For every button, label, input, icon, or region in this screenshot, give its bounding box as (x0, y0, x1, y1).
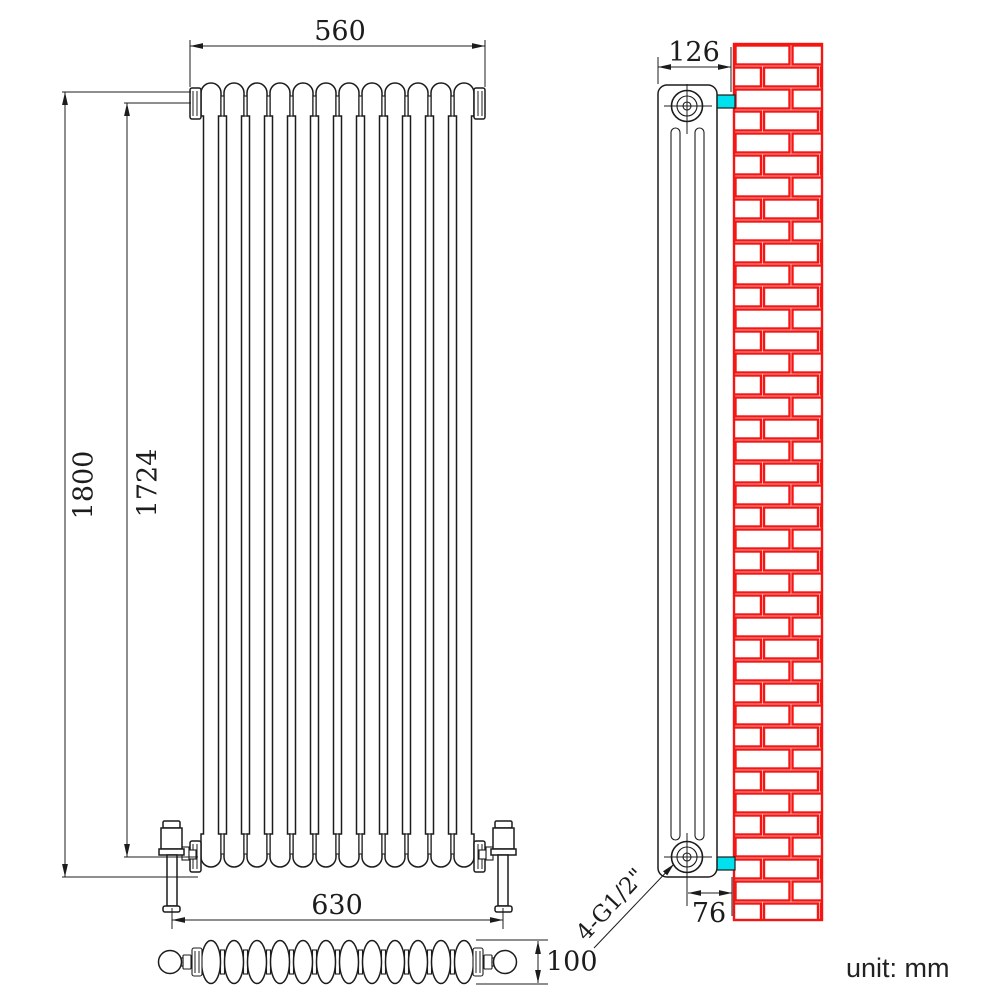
dim-630: 630 (172, 890, 503, 929)
dim-560-label: 560 (314, 16, 366, 47)
column-connector-bottom (405, 834, 408, 854)
radiator-technical-drawing: 560 1800 1724 630 (0, 0, 1001, 1001)
front-columns (201, 83, 474, 867)
column-connector-bottom (428, 834, 431, 854)
dim-126-label: 126 (668, 37, 720, 68)
radiator-column (201, 83, 221, 867)
radiator-column (385, 83, 405, 867)
plan-valve-right (473, 948, 517, 976)
column-connector-top (221, 96, 224, 116)
column-connector-top (451, 96, 454, 116)
column-connector-top (313, 96, 316, 116)
front-top-left-cap (190, 88, 201, 119)
plan-column-section (386, 941, 405, 984)
column-connector-top (382, 96, 385, 116)
radiator-column (454, 83, 474, 867)
plan-columns (202, 941, 474, 984)
plan-column-section (202, 941, 221, 984)
unit-label: unit: mm (846, 953, 950, 983)
front-view (159, 83, 516, 912)
dim-1800: 1800 (62, 92, 198, 877)
column-connector-top (359, 96, 362, 116)
wall-bracket-top (716, 95, 735, 108)
column-connector-top (428, 96, 431, 116)
plan-column-section (271, 941, 290, 984)
connection-callout: 4-G1/2" (571, 864, 674, 948)
radiator-column (316, 83, 336, 867)
plan-column-section (432, 941, 451, 984)
front-top-right-cap (474, 88, 485, 119)
plan-column-section (317, 941, 336, 984)
plan-column-section (340, 941, 359, 984)
radiator-column (431, 83, 451, 867)
radiator-column (293, 83, 313, 867)
radiator-column (270, 83, 290, 867)
dim-1724-label: 1724 (133, 449, 164, 518)
dim-630-label: 630 (311, 890, 363, 921)
dim-100-label: 100 (546, 947, 598, 978)
wall-bracket-bottom (716, 857, 735, 870)
connection-size-label: 4-G1/2" (571, 864, 650, 946)
column-connector-bottom (382, 834, 385, 854)
column-connector-top (405, 96, 408, 116)
dim-560: 560 (190, 16, 485, 87)
dim-76: 76 (688, 877, 732, 929)
column-connector-top (267, 96, 270, 116)
column-connector-bottom (221, 834, 224, 854)
dim-126: 126 (658, 37, 731, 92)
dim-76-label: 76 (692, 898, 726, 929)
column-connector-bottom (313, 834, 316, 854)
plan-column-section (455, 941, 474, 984)
radiator-column (408, 83, 428, 867)
brick-wall (734, 44, 822, 920)
column-connector-bottom (451, 834, 454, 854)
dim-1724: 1724 (124, 103, 198, 857)
column-connector-bottom (336, 834, 339, 854)
column-connector-bottom (290, 834, 293, 854)
dim-1800-label: 1800 (69, 451, 100, 520)
column-connector-bottom (359, 834, 362, 854)
plan-column-section (294, 941, 313, 984)
radiator-column (362, 83, 382, 867)
plan-valve-left (159, 948, 203, 976)
column-connector-top (336, 96, 339, 116)
side-body (658, 85, 717, 877)
column-connector-top (244, 96, 247, 116)
column-connector-bottom (267, 834, 270, 854)
column-connector-top (290, 96, 293, 116)
side-view (658, 44, 822, 920)
radiator-column (224, 83, 244, 867)
plan-column-section (225, 941, 244, 984)
plan-column-section (363, 941, 382, 984)
radiator-column (247, 83, 267, 867)
plan-view (159, 941, 517, 984)
radiator-column (339, 83, 359, 867)
plan-column-section (248, 941, 267, 984)
column-connector-bottom (244, 834, 247, 854)
plan-column-section (409, 941, 428, 984)
